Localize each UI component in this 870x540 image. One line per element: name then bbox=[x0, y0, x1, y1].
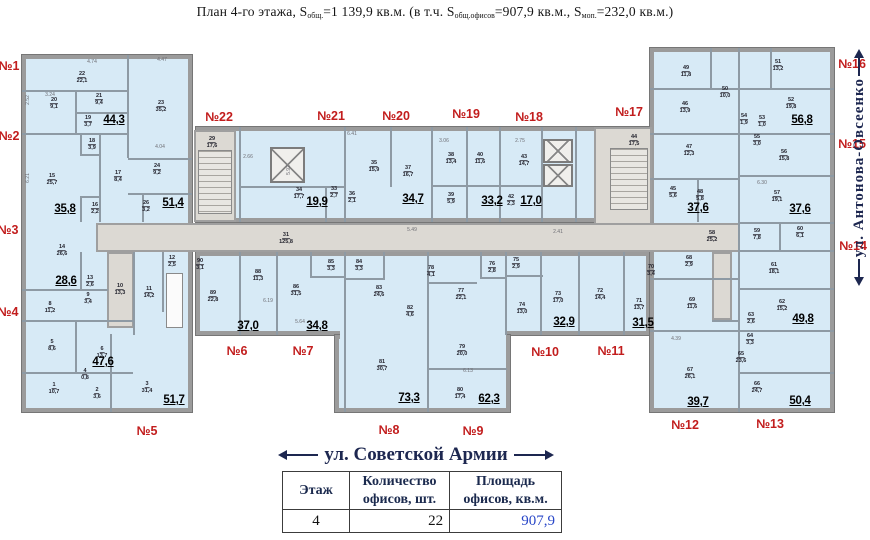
room-label: 1426,6 bbox=[57, 244, 68, 258]
room-area: 13,9 bbox=[680, 109, 691, 115]
dimension-label: 6.13 bbox=[463, 368, 473, 374]
room-label: 531,0 bbox=[758, 115, 766, 129]
room-number: 14 bbox=[58, 244, 66, 251]
arrow-right-icon bbox=[514, 454, 550, 456]
elevator-shaft bbox=[543, 164, 573, 187]
apartment-number: №5 bbox=[137, 424, 158, 438]
dimension-label: 2.75 bbox=[515, 138, 525, 144]
table-value-row: 4 22 907,9 bbox=[283, 510, 562, 533]
wall-segment bbox=[240, 186, 344, 188]
room-label: 1525,7 bbox=[47, 173, 58, 187]
header-office-count: Количество офисов, шт. bbox=[350, 472, 450, 510]
room-area: 2,2 bbox=[91, 210, 99, 216]
room-label: 7113,7 bbox=[634, 298, 645, 312]
room-label: 1013,3 bbox=[115, 283, 126, 297]
room-label: 762,8 bbox=[488, 261, 496, 275]
wall-segment bbox=[540, 252, 542, 335]
room-label: 23,6 bbox=[93, 387, 101, 401]
wall-segment bbox=[740, 288, 834, 290]
room-number: 63 bbox=[747, 312, 755, 319]
room-number: 21 bbox=[95, 93, 103, 100]
wall-segment bbox=[480, 277, 507, 279]
room-area: 13,7 bbox=[634, 306, 645, 312]
room-area: 12,3 bbox=[684, 152, 695, 158]
room-area: 9,1 bbox=[50, 105, 58, 111]
room-label: 6726,1 bbox=[685, 367, 696, 381]
dimension-label: 6.21 bbox=[25, 173, 31, 183]
room-number: 4 bbox=[82, 368, 87, 375]
room-label: 606,1 bbox=[796, 226, 804, 240]
apartment-total-area: 37,6 bbox=[789, 203, 810, 215]
dimension-label: 5.64 bbox=[295, 319, 305, 325]
room-label: 5113,2 bbox=[773, 59, 784, 73]
room-number: 64 bbox=[746, 333, 754, 340]
apartment-number: №18 bbox=[515, 110, 543, 124]
room-label: 6624,7 bbox=[752, 381, 763, 395]
room-label: 5719,1 bbox=[772, 190, 783, 204]
wall-segment bbox=[427, 282, 477, 284]
room-number: 80 bbox=[456, 387, 464, 394]
wall-segment bbox=[432, 185, 542, 187]
wall-segment bbox=[740, 330, 834, 332]
wall-segment bbox=[345, 278, 385, 280]
room-label: 40,8 bbox=[81, 368, 89, 382]
floor-plan-page: План 4-го этажа, Sобщ.=1 139,9 кв.м. (в … bbox=[0, 0, 870, 540]
room-number: 79 bbox=[458, 344, 466, 351]
room-number: 5 bbox=[49, 339, 54, 346]
room-number: 26 bbox=[142, 200, 150, 207]
room-label: 4712,3 bbox=[684, 144, 695, 158]
apartment-number: №9 bbox=[463, 424, 484, 438]
room-area: 16,7 bbox=[403, 173, 414, 179]
room-area: 14,2 bbox=[144, 294, 155, 300]
room-area: 19,8 bbox=[786, 105, 797, 111]
room-area: 22,1 bbox=[456, 296, 467, 302]
wall-segment bbox=[128, 193, 192, 195]
wall-segment bbox=[310, 276, 346, 278]
room-area: 20,0 bbox=[457, 352, 468, 358]
room-label: 7722,1 bbox=[456, 288, 467, 302]
wall-segment bbox=[505, 252, 507, 335]
room-number: 55 bbox=[753, 134, 761, 141]
wall-segment bbox=[480, 252, 482, 278]
room-area: 3,3 bbox=[746, 341, 754, 347]
room-label: 903,1 bbox=[196, 258, 204, 272]
wall-segment bbox=[127, 55, 129, 158]
room-label: 6215,2 bbox=[777, 299, 788, 313]
dimension-label: 6.30 bbox=[757, 180, 767, 186]
room-number: 84 bbox=[355, 259, 363, 266]
room-number: 34 bbox=[295, 187, 303, 194]
wall-segment bbox=[22, 372, 133, 374]
room-label: 597,8 bbox=[753, 228, 761, 242]
room-number: 54 bbox=[740, 113, 748, 120]
wall-segment bbox=[239, 127, 241, 222]
arrow-left-icon bbox=[282, 454, 318, 456]
room-label: 7920,0 bbox=[457, 344, 468, 358]
room-label: 332,7 bbox=[330, 186, 338, 200]
apartment-number: №7 bbox=[293, 344, 314, 358]
room-number: 48 bbox=[696, 189, 704, 196]
room-area: 25,2 bbox=[707, 238, 718, 244]
header-floor: Этаж bbox=[283, 472, 350, 510]
apartment-number: №22 bbox=[205, 110, 233, 124]
room-number: 66 bbox=[753, 381, 761, 388]
header-office-area: Площадь офисов, кв.м. bbox=[450, 472, 562, 510]
room-area: 3,0 bbox=[753, 142, 761, 148]
room-number: 56 bbox=[780, 149, 788, 156]
room-number: 74 bbox=[518, 302, 526, 309]
wall-segment bbox=[740, 250, 834, 252]
office-area-value: 907,9 bbox=[450, 510, 562, 533]
wall-segment bbox=[740, 88, 834, 90]
apartment-total-area: 37,6 bbox=[687, 202, 708, 214]
wall-segment bbox=[712, 320, 740, 322]
room-label: 178,4 bbox=[114, 170, 122, 184]
room-area: 6,1 bbox=[796, 234, 804, 240]
room-area: 14,4 bbox=[595, 296, 606, 302]
room-area: 2,7 bbox=[330, 194, 338, 200]
room-label: 58,6 bbox=[48, 339, 56, 353]
room-area: 17,5 bbox=[629, 142, 640, 148]
wall-segment bbox=[276, 252, 278, 335]
room-label: 331,4 bbox=[142, 381, 153, 395]
room-area: 35,2 bbox=[156, 108, 167, 114]
room-number: 37 bbox=[404, 165, 412, 172]
room-label: 110,7 bbox=[49, 382, 60, 396]
apartment-number: №13 bbox=[756, 417, 784, 431]
wall-segment bbox=[80, 196, 100, 198]
wall-segment bbox=[650, 178, 738, 180]
room-area: 15,9 bbox=[369, 168, 380, 174]
room-area: 9,4 bbox=[95, 101, 103, 107]
room-label: 682,9 bbox=[685, 255, 693, 269]
wall-segment bbox=[740, 175, 834, 177]
apartment-total-area: 44,3 bbox=[103, 114, 124, 126]
room-area: 11,2 bbox=[45, 309, 55, 315]
apartment-total-area: 62,3 bbox=[478, 393, 499, 405]
room-number: 75 bbox=[512, 257, 520, 264]
apartment-total-area: 47,6 bbox=[92, 356, 113, 368]
room-label: 183,9 bbox=[88, 138, 96, 152]
dimension-label: 2.52 bbox=[25, 95, 31, 105]
wall-segment bbox=[80, 196, 82, 222]
room-area: 1,0 bbox=[758, 123, 766, 129]
room-label: 7214,4 bbox=[595, 288, 606, 302]
room-area: 11,8 bbox=[681, 73, 691, 79]
room-area: 31,4 bbox=[142, 389, 153, 395]
wall-segment bbox=[133, 252, 135, 335]
room-label: 4613,9 bbox=[680, 101, 691, 115]
room-label: 784,1 bbox=[427, 265, 435, 279]
room-label: 1114,2 bbox=[144, 286, 155, 300]
room-area: 13,0 bbox=[517, 310, 528, 316]
room-label: 824,6 bbox=[406, 305, 414, 319]
apartment-number: №10 bbox=[531, 345, 559, 359]
wall-segment bbox=[390, 127, 392, 187]
room-number: 22 bbox=[78, 71, 86, 78]
room-number: 46 bbox=[681, 101, 689, 108]
room-area: 4,1 bbox=[427, 273, 435, 279]
room-number: 58 bbox=[708, 230, 716, 237]
room-label: 541,9 bbox=[740, 113, 748, 127]
apartment-total-area: 19,9 bbox=[306, 196, 327, 208]
room-label: 6118,1 bbox=[769, 262, 780, 276]
room-label: 5615,8 bbox=[779, 149, 790, 163]
room-number: 42 bbox=[507, 194, 515, 201]
room-number: 68 bbox=[685, 255, 693, 262]
room-area: 13,3 bbox=[115, 291, 126, 297]
room-label: 485,8 bbox=[696, 189, 704, 203]
wall-segment bbox=[80, 252, 82, 290]
room-number: 61 bbox=[770, 262, 778, 269]
wall-segment bbox=[80, 133, 82, 155]
room-label: 632,6 bbox=[747, 312, 755, 326]
wall-segment bbox=[22, 289, 108, 291]
room-area: 10,0 bbox=[720, 94, 731, 100]
wall-segment bbox=[310, 252, 312, 278]
arrow-up-icon bbox=[858, 52, 860, 76]
room-label: 6911,6 bbox=[687, 297, 697, 311]
wall-segment bbox=[162, 252, 164, 312]
room-label: 162,2 bbox=[91, 202, 99, 216]
room-label: 811,2 bbox=[45, 301, 55, 315]
room-area: 11,3 bbox=[253, 277, 263, 283]
room-label: 853,3 bbox=[327, 259, 335, 273]
room-area: 19,1 bbox=[772, 198, 783, 204]
dimension-label: 4.47 bbox=[157, 57, 167, 63]
wall-segment bbox=[650, 133, 738, 135]
room-area: 24,6 bbox=[374, 293, 385, 299]
room-label: 6523,6 bbox=[736, 351, 747, 365]
apartment-total-area: 56,8 bbox=[791, 114, 812, 126]
room-number: 49 bbox=[682, 65, 690, 72]
apartment-number: №21 bbox=[317, 109, 345, 123]
dimension-label: 2.41 bbox=[553, 229, 563, 235]
wall-segment bbox=[578, 252, 580, 335]
room-number: 73 bbox=[554, 291, 562, 298]
street-label-right: ул. Антонова-Овсеенко bbox=[848, 52, 870, 322]
room-area: 26,1 bbox=[685, 375, 696, 381]
room-area: 7,8 bbox=[753, 236, 761, 242]
room-area: 24,7 bbox=[752, 389, 763, 395]
room-area: 17,6 bbox=[207, 144, 218, 150]
room-area: 3,9 bbox=[88, 146, 96, 152]
room-number: 47 bbox=[685, 144, 693, 151]
wall-segment bbox=[344, 127, 346, 222]
street-label-bottom: ул. Советской Армии bbox=[276, 443, 556, 467]
room-area: 1,9 bbox=[740, 121, 748, 127]
room-number: 18 bbox=[88, 138, 96, 145]
vent-shaft bbox=[166, 273, 183, 328]
room-area: 23,6 bbox=[736, 359, 747, 365]
room-number: 33 bbox=[330, 186, 338, 193]
room-number: 85 bbox=[327, 259, 335, 266]
room-label: 703,4 bbox=[647, 264, 655, 278]
apartment-number: №2 bbox=[0, 129, 19, 143]
wall-segment bbox=[740, 372, 834, 374]
wall-segment bbox=[22, 133, 128, 135]
room-number: 11 bbox=[145, 286, 153, 293]
room-area: 2,5 bbox=[168, 263, 176, 269]
room-area: 125,8 bbox=[279, 240, 293, 246]
room-label: 3515,9 bbox=[369, 160, 380, 174]
wall-segment bbox=[75, 320, 77, 372]
room-number: 90 bbox=[196, 258, 204, 265]
room-label: 3417,7 bbox=[294, 187, 305, 201]
room-number: 24 bbox=[153, 163, 161, 170]
apartment-total-area: 49,8 bbox=[792, 313, 813, 325]
room-number: 12 bbox=[168, 255, 176, 262]
room-number: 9 bbox=[85, 292, 90, 299]
room-area: 0,8 bbox=[81, 376, 89, 382]
room-label: 31125,8 bbox=[279, 232, 293, 246]
room-area: 3,6 bbox=[93, 395, 101, 401]
dimension-label: 4.39 bbox=[671, 336, 681, 342]
apartment-number: №6 bbox=[227, 344, 248, 358]
room-area: 3,4 bbox=[84, 300, 92, 306]
room-area: 8,4 bbox=[114, 178, 122, 184]
room-label: 752,9 bbox=[512, 257, 520, 271]
wall-segment bbox=[466, 127, 468, 222]
room-label: 193,7 bbox=[84, 115, 92, 129]
room-area: 30,7 bbox=[377, 367, 388, 373]
room-area: 13,4 bbox=[446, 160, 457, 166]
room-label: 395,9 bbox=[447, 192, 455, 206]
staircase bbox=[198, 150, 232, 214]
room-area: 14,7 bbox=[519, 162, 530, 168]
room-label: 209,1 bbox=[50, 97, 58, 111]
room-number: 78 bbox=[427, 265, 435, 272]
room-number: 76 bbox=[488, 261, 496, 268]
room-area: 17,0 bbox=[553, 299, 564, 305]
room-area: 22,1 bbox=[77, 79, 88, 85]
wall-segment bbox=[779, 222, 781, 252]
room-number: 17 bbox=[114, 170, 122, 177]
wall-segment bbox=[505, 275, 543, 277]
room-area: 3,1 bbox=[196, 266, 204, 272]
apartment-total-area: 51,4 bbox=[162, 197, 183, 209]
room-label: 643,3 bbox=[746, 333, 754, 347]
staircase bbox=[610, 148, 648, 210]
room-area: 3,7 bbox=[84, 123, 92, 129]
arrow-down-icon bbox=[858, 259, 860, 283]
central-bottom-rooms bbox=[196, 252, 650, 335]
room-label: 8922,8 bbox=[208, 290, 219, 304]
room-number: 81 bbox=[378, 359, 386, 366]
wall-segment bbox=[650, 278, 738, 280]
room-label: 263,2 bbox=[142, 200, 150, 214]
apartment-total-area: 51,7 bbox=[163, 394, 184, 406]
room-number: 59 bbox=[753, 228, 761, 235]
room-label: 5825,2 bbox=[707, 230, 718, 244]
room-label: 7317,0 bbox=[553, 291, 564, 305]
room-number: 51 bbox=[774, 59, 782, 66]
apartment-number: №4 bbox=[0, 305, 18, 319]
apartment-number: №8 bbox=[379, 423, 400, 437]
summary-table: Этаж Количество офисов, шт. Площадь офис… bbox=[282, 471, 562, 533]
apartment-number: №20 bbox=[382, 109, 410, 123]
room-number: 39 bbox=[447, 192, 455, 199]
floor-value: 4 bbox=[283, 510, 350, 533]
apartment-number: №11 bbox=[597, 344, 624, 358]
table-header-row: Этаж Количество офисов, шт. Площадь офис… bbox=[283, 472, 562, 510]
room-label: 93,4 bbox=[84, 292, 92, 306]
room-number: 83 bbox=[375, 285, 383, 292]
room-number: 70 bbox=[647, 264, 655, 271]
room-area: 3,3 bbox=[355, 267, 363, 273]
room-area: 22,8 bbox=[208, 298, 219, 304]
room-area: 4,6 bbox=[406, 313, 414, 319]
room-number: 10 bbox=[116, 283, 124, 290]
room-number: 13 bbox=[86, 275, 94, 282]
room-area: 2,9 bbox=[685, 263, 693, 269]
room-area: 5,9 bbox=[447, 200, 455, 206]
room-area: 26,6 bbox=[57, 252, 68, 258]
room-area: 2,6 bbox=[86, 283, 94, 289]
room-label: 8811,3 bbox=[253, 269, 263, 283]
room-number: 82 bbox=[406, 305, 414, 312]
room-number: 50 bbox=[721, 86, 729, 93]
right-wing-corridor bbox=[712, 252, 732, 320]
room-area: 2,8 bbox=[488, 269, 496, 275]
room-number: 88 bbox=[254, 269, 262, 276]
room-label: 122,5 bbox=[168, 255, 176, 269]
room-number: 72 bbox=[596, 288, 604, 295]
room-number: 53 bbox=[758, 115, 766, 122]
dimension-label: 3.24 bbox=[45, 92, 55, 98]
room-label: 5219,8 bbox=[786, 97, 797, 111]
apartment-total-area: 35,8 bbox=[54, 203, 75, 215]
room-number: 62 bbox=[778, 299, 786, 306]
room-area: 11,6 bbox=[475, 160, 485, 166]
dimension-label: 6.19 bbox=[263, 298, 273, 304]
room-area: 11,6 bbox=[687, 305, 697, 311]
wall-segment bbox=[22, 320, 133, 322]
room-label: 8631,5 bbox=[291, 284, 302, 298]
wall-segment bbox=[110, 372, 112, 412]
room-label: 553,0 bbox=[753, 134, 761, 148]
wall-segment bbox=[710, 48, 712, 88]
apartment-total-area: 33,2 bbox=[481, 195, 502, 207]
wall-segment bbox=[623, 252, 625, 335]
apartment-total-area: 73,3 bbox=[398, 392, 419, 404]
office-count-value: 22 bbox=[350, 510, 450, 533]
room-number: 60 bbox=[796, 226, 804, 233]
room-number: 45 bbox=[669, 186, 677, 193]
room-label: 2917,6 bbox=[207, 136, 218, 150]
room-label: 8017,4 bbox=[455, 387, 466, 401]
room-number: 52 bbox=[787, 97, 795, 104]
apartment-number: №12 bbox=[671, 418, 699, 432]
room-number: 69 bbox=[688, 297, 696, 304]
room-label: 3716,7 bbox=[403, 165, 414, 179]
apartment-total-area: 31,5 bbox=[632, 317, 653, 329]
dimension-label: 5.49 bbox=[407, 227, 417, 233]
room-number: 19 bbox=[84, 115, 92, 122]
wall-segment bbox=[575, 127, 577, 222]
room-number: 20 bbox=[50, 97, 58, 104]
room-label: 7413,0 bbox=[517, 302, 528, 316]
room-number: 71 bbox=[635, 298, 643, 305]
room-label: 3813,4 bbox=[446, 152, 457, 166]
apartment-number: №1 bbox=[0, 59, 19, 73]
wall-segment bbox=[650, 330, 738, 332]
dimension-label: 5.92 bbox=[286, 165, 292, 175]
room-number: 57 bbox=[773, 190, 781, 197]
room-label: 4911,8 bbox=[681, 65, 691, 79]
dimension-label: 3.06 bbox=[439, 138, 449, 144]
